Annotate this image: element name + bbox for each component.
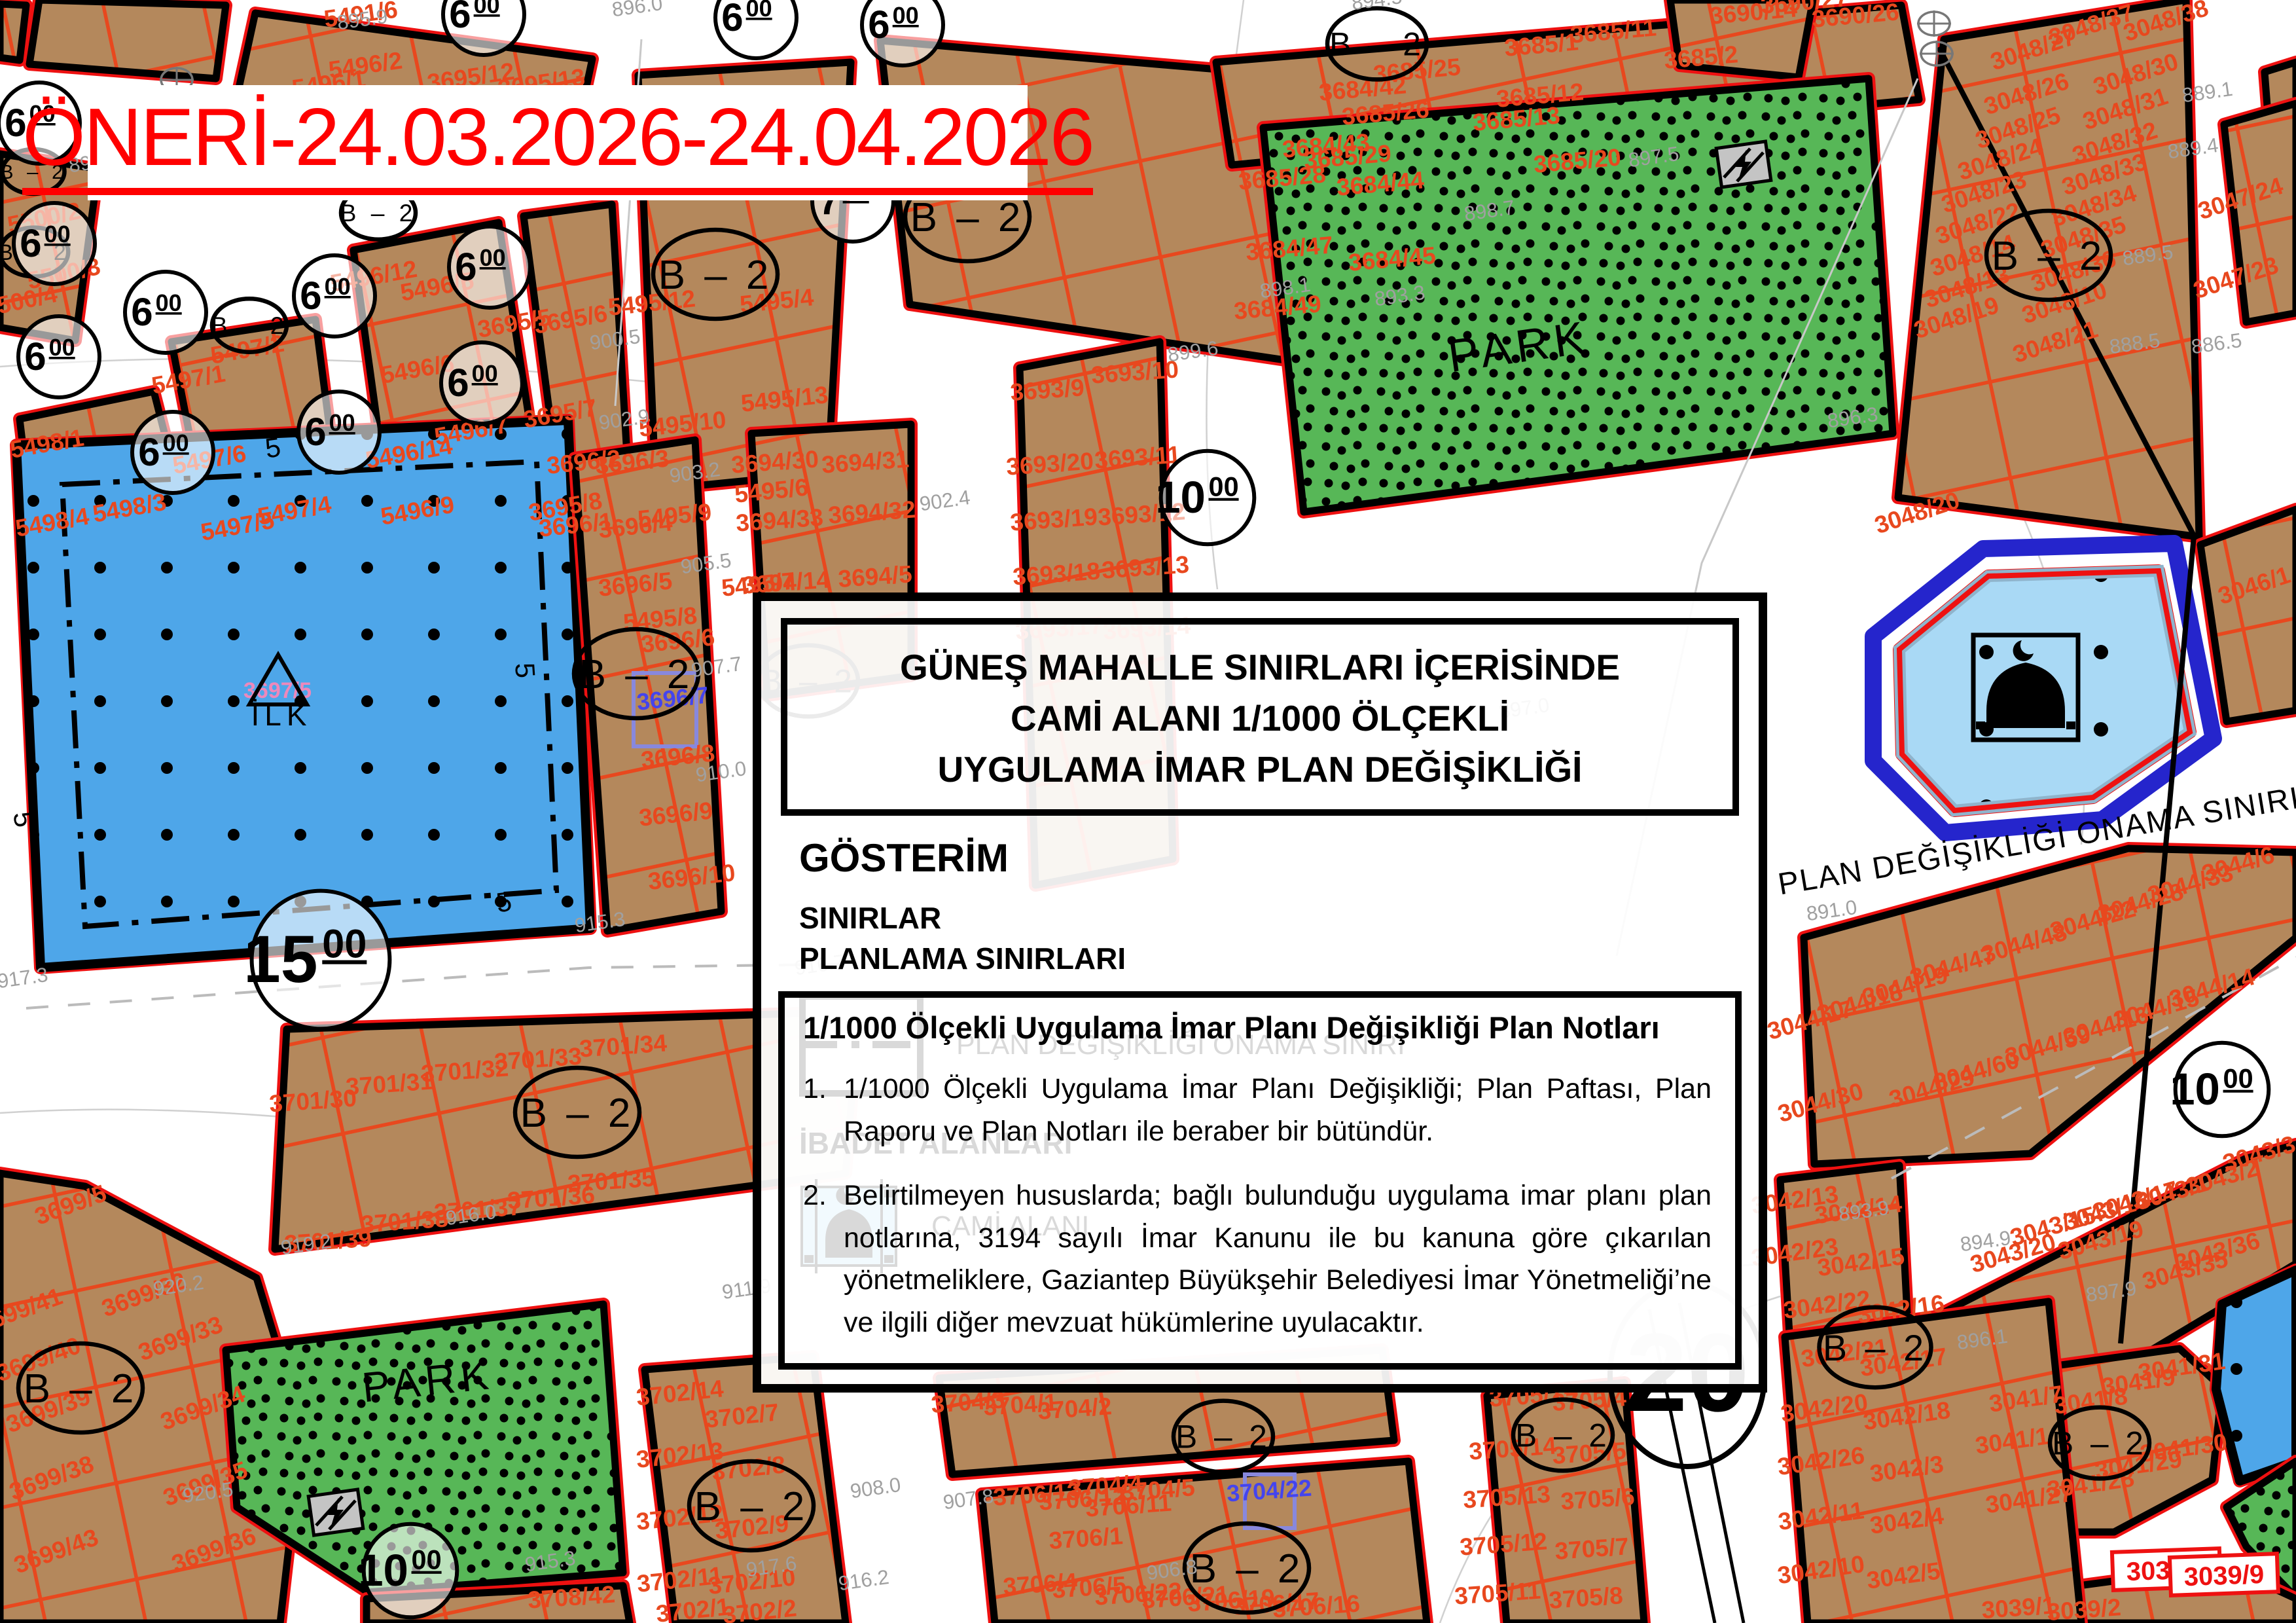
zone-label: B – 2 [1515, 1417, 1611, 1454]
legend-subheading: SINIRLAR [799, 900, 1759, 936]
parcel-label: 3704/2 [1037, 1393, 1113, 1425]
elevation-label: 896.0 [611, 0, 664, 21]
mosque-pillar [2066, 721, 2075, 729]
elevation-label: 908.0 [849, 1473, 903, 1503]
highlighted-parcel-label: 3039/9 [2183, 1560, 2265, 1592]
zone-label: B – 2 [24, 1366, 138, 1412]
plan-title-line2: CAMİ ALANI 1/1000 ÖLÇEKLİ [794, 693, 1726, 744]
zone-label: B – 2 [1175, 1419, 1271, 1455]
parcel-label: 3705/6 [1560, 1483, 1636, 1515]
parcel-label: 3694/5 [837, 560, 913, 593]
transformer-icon [1716, 141, 1771, 187]
proposal-date-banner: ÖNERİ-24.03.2026-24.04.2026 [88, 85, 1028, 200]
elevation-label: 917.3 [0, 963, 49, 993]
legend-heading: GÖSTERİM [799, 835, 1759, 881]
parcel-label: 3693/9 [1009, 374, 1085, 406]
parcel-label: 3706/1 [1048, 1522, 1124, 1554]
setback-distance-label: 5 [509, 662, 541, 680]
zone-label: B – 2 [1190, 1546, 1304, 1592]
zone-label: B – 2 [910, 195, 1025, 240]
plan-notes-heading: 1/1000 Ölçekli Uygulama İmar Planı Değiş… [803, 1010, 1712, 1046]
elevation-label: 902.4 [918, 486, 972, 515]
zone-label: B – 2 [579, 652, 694, 697]
mosque-pillar [1976, 721, 1985, 729]
zone-label: B – 2 [340, 199, 417, 227]
zone-label: B – 2 [1329, 26, 1425, 63]
plan-title-line1: GÜNEŞ MAHALLE SINIRLARI İÇERİSİNDE [794, 642, 1726, 693]
parcel-label: 3039/1 [1981, 1592, 2056, 1623]
zone-label: B – 2 [2052, 1425, 2147, 1462]
plan-note-1: 1. 1/1000 Ölçekli Uygulama İmar Planı De… [803, 1068, 1712, 1152]
zone-label: B – 2 [694, 1484, 809, 1529]
plan-sheet: { "oneri": { "text": "ÖNERİ-24.03.2026-2… [0, 0, 2296, 1623]
transformer-icon [308, 1489, 363, 1535]
parcel-label: 3693/13 [1101, 551, 1190, 583]
zone-label: B – 2 [658, 253, 773, 298]
parcel-label: 3039/2 [2046, 1594, 2122, 1623]
zone-label: B – 2 [520, 1091, 635, 1136]
proposal-date-text: ÖNERİ-24.03.2026-24.04.2026 [22, 91, 1093, 195]
legend-group-planning: PLANLAMA SINIRLARI [799, 941, 1759, 976]
plan-note-2: 2. Belirtilmeyen hususlarda; bağlı bulun… [803, 1175, 1712, 1343]
plan-title-line3: UYGULAMA İMAR PLAN DEĞİŞİKLİĞİ [794, 744, 1726, 795]
plan-notes-box: 1/1000 Ölçekli Uygulama İmar Planı Değiş… [778, 991, 1742, 1370]
zone-label: B – 2 [1992, 234, 2106, 279]
zone-label: B – 2 [1823, 1327, 1928, 1368]
plan-info-panel: GÜNEŞ MAHALLE SINIRLARI İÇERİSİNDE CAMİ … [753, 593, 1767, 1393]
parcel-label: 3705/7 [1554, 1533, 1630, 1565]
parcel-label: 3705/8 [1548, 1582, 1624, 1614]
zone-label: B – 2 [211, 312, 288, 339]
plan-title-box: GÜNEŞ MAHALLE SINIRLARI İÇERİSİNDE CAMİ … [781, 618, 1739, 816]
